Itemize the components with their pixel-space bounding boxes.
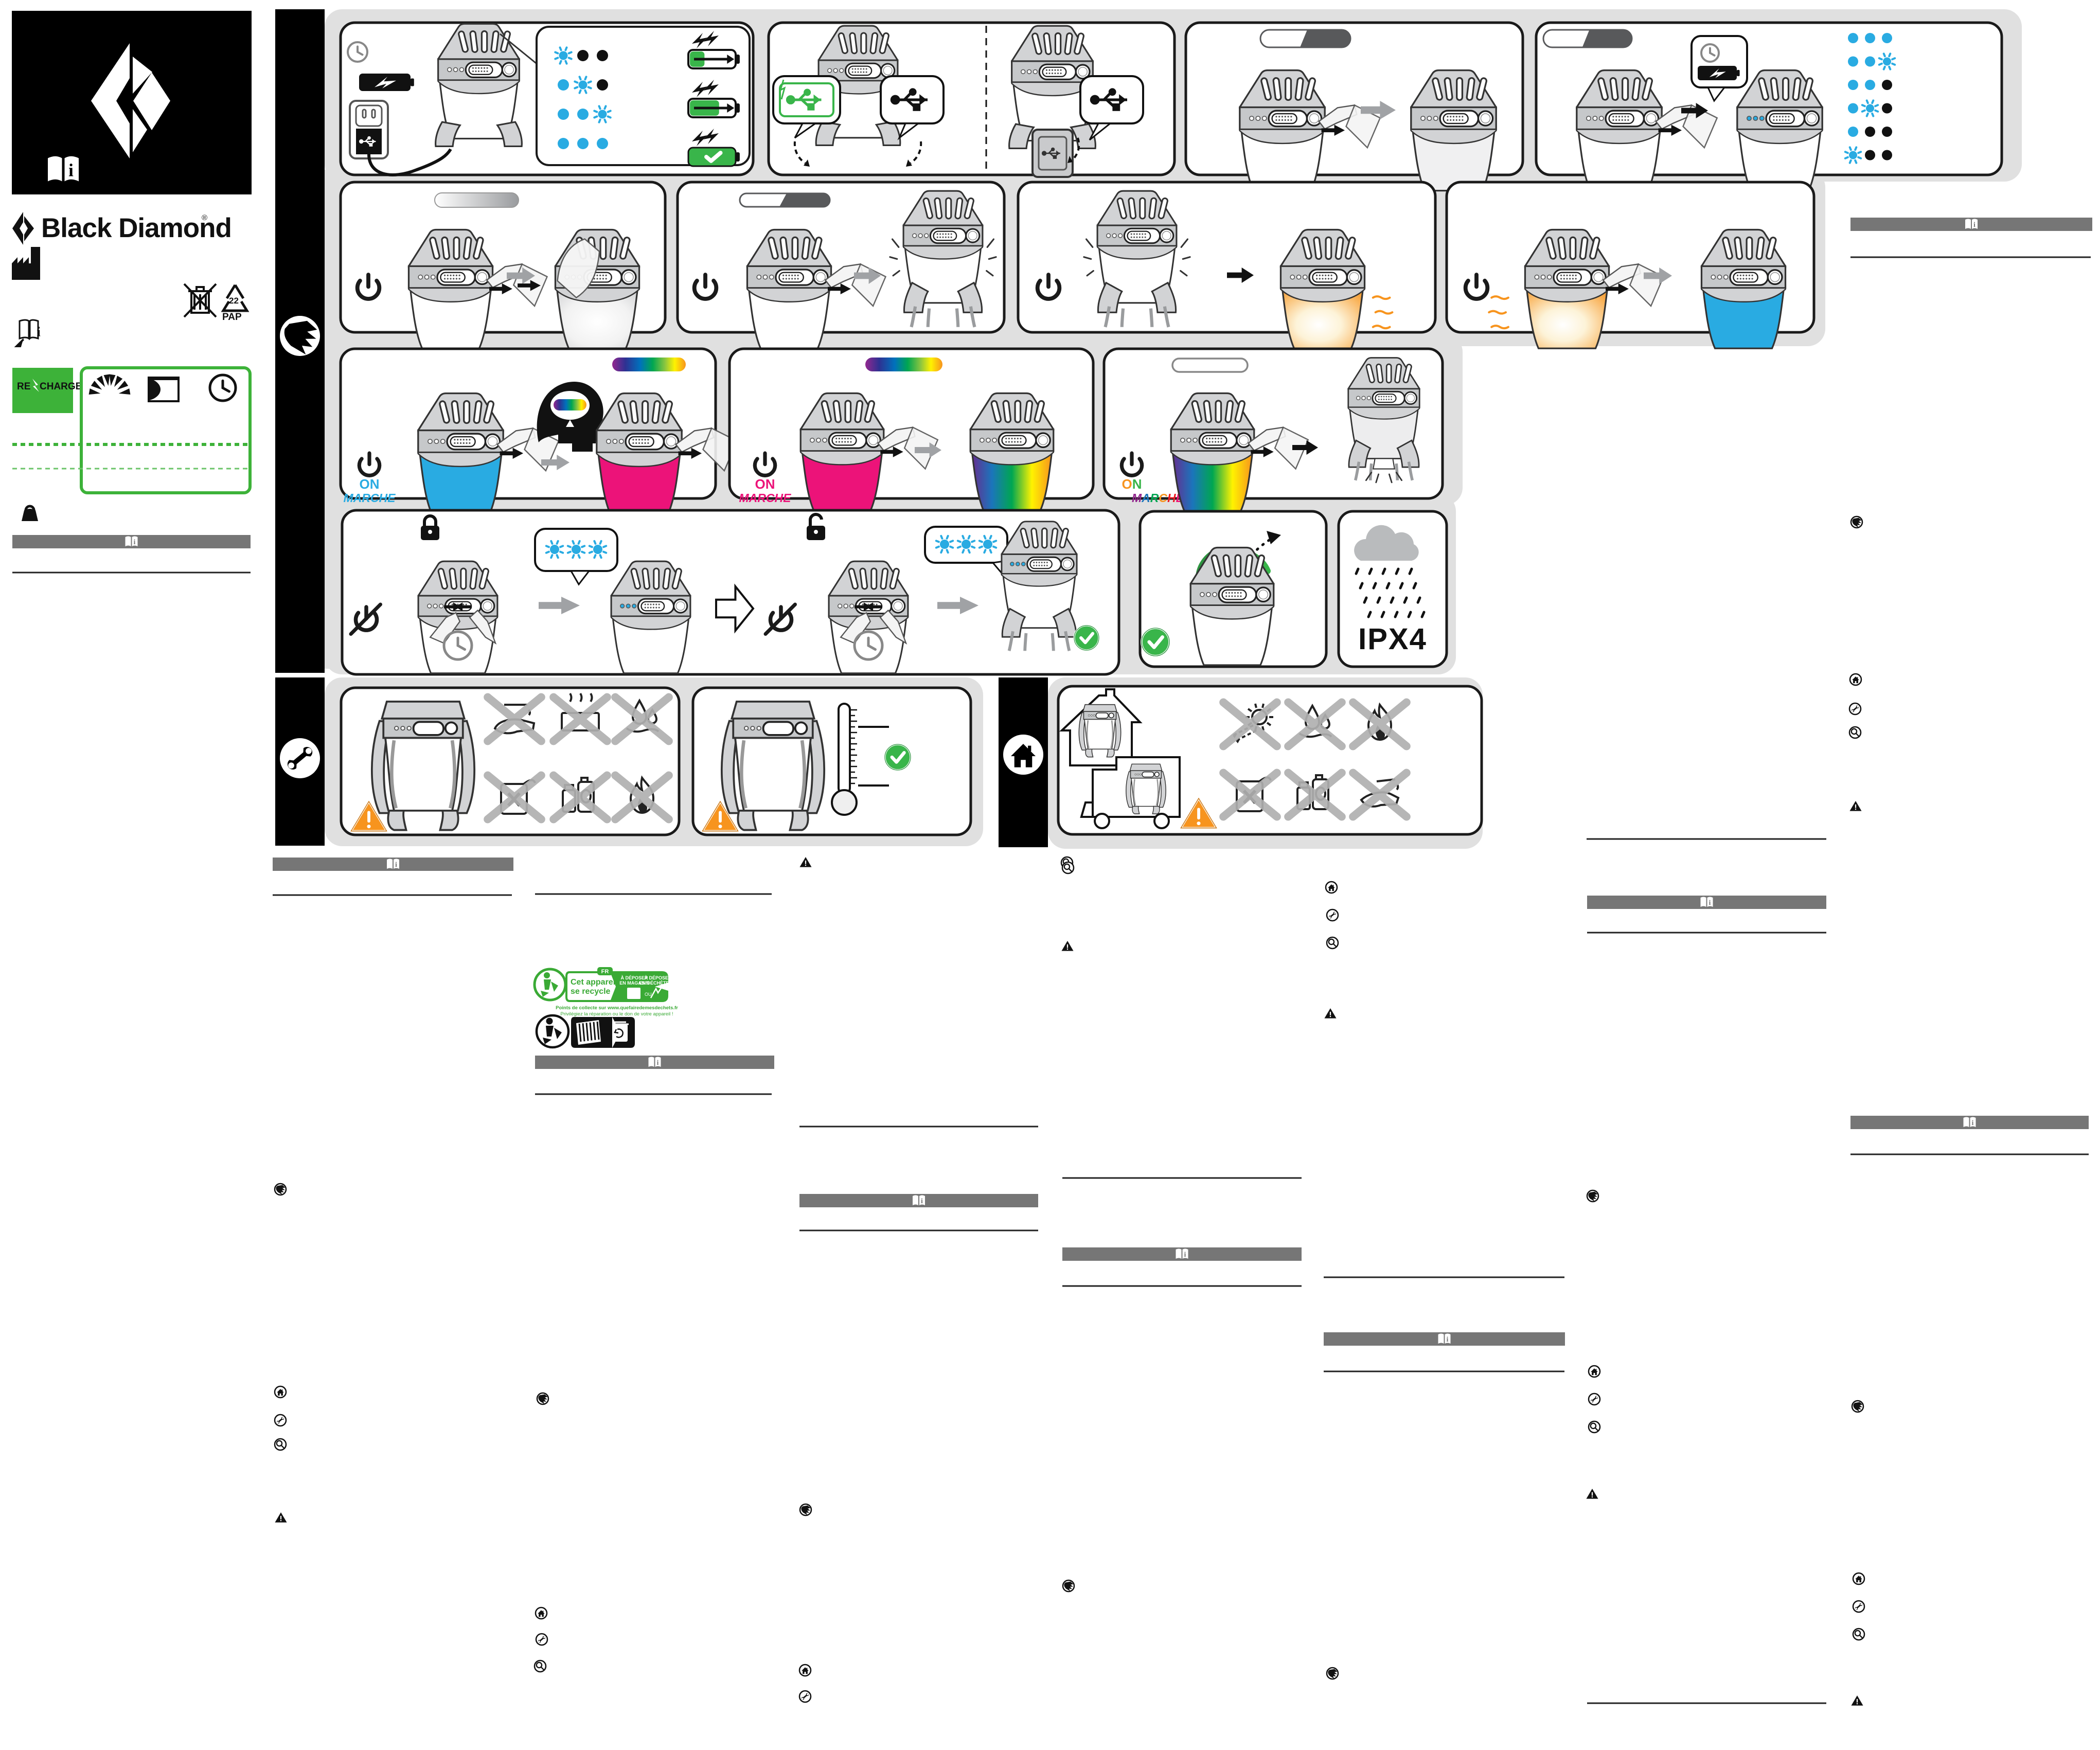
svg-text:MARCHE: MARCHE bbox=[1132, 491, 1184, 505]
svg-text:i: i bbox=[657, 1059, 659, 1067]
svg-text:i: i bbox=[1972, 1119, 1974, 1127]
svg-text:i: i bbox=[1447, 1336, 1449, 1344]
svg-text:ON: ON bbox=[755, 476, 775, 492]
svg-text:IPX4: IPX4 bbox=[1358, 622, 1427, 656]
svg-text:i: i bbox=[134, 539, 136, 546]
svg-text:CHARGE: CHARGE bbox=[40, 381, 82, 392]
svg-text:ON: ON bbox=[360, 476, 380, 492]
svg-text:RE: RE bbox=[17, 381, 30, 392]
svg-text:EN DÉCHÈTERIE: EN DÉCHÈTERIE bbox=[639, 980, 677, 986]
svg-text:i: i bbox=[1973, 221, 1976, 229]
svg-text:i: i bbox=[68, 160, 74, 181]
svg-text:®: ® bbox=[202, 213, 207, 222]
svg-text:FR: FR bbox=[601, 969, 609, 975]
svg-text:PAP: PAP bbox=[222, 312, 242, 323]
svg-text:Cet appareil: Cet appareil bbox=[571, 978, 618, 987]
svg-text:i: i bbox=[1184, 1251, 1186, 1259]
svg-text:OU: OU bbox=[645, 992, 652, 997]
svg-text:Points de collecte sur www.que: Points de collecte sur www.quefairedemes… bbox=[556, 1005, 678, 1011]
svg-text:MARCHE: MARCHE bbox=[739, 491, 792, 505]
svg-text:À DÉPOSER: À DÉPOSER bbox=[644, 975, 672, 980]
svg-text:i: i bbox=[395, 861, 397, 869]
svg-text:se recycle: se recycle bbox=[571, 987, 611, 996]
svg-text:ON: ON bbox=[1122, 476, 1142, 492]
svg-text:MARCHE: MARCHE bbox=[344, 491, 396, 505]
svg-text:i: i bbox=[1709, 899, 1711, 907]
svg-text:22: 22 bbox=[229, 296, 239, 306]
svg-text:i: i bbox=[921, 1198, 923, 1205]
svg-text:Privilégiez la réparation ou l: Privilégiez la réparation ou le don de v… bbox=[560, 1011, 673, 1017]
